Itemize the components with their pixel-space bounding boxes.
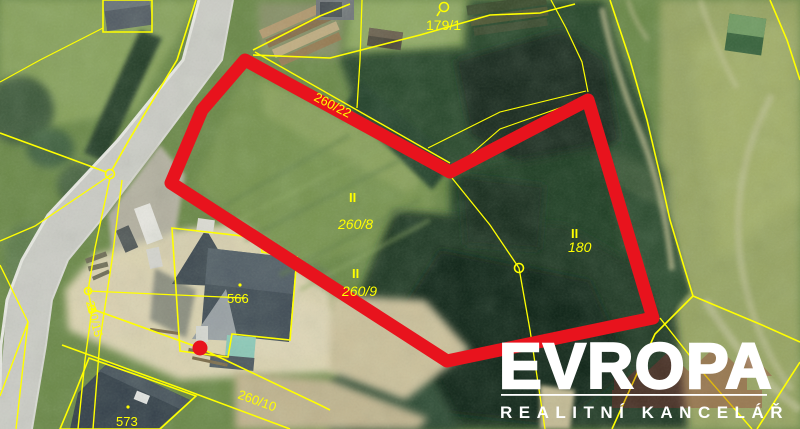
svg-text:260/9: 260/9: [341, 283, 377, 299]
svg-text:II: II: [349, 190, 356, 205]
svg-text:260/8: 260/8: [337, 216, 373, 232]
svg-text:REALITNÍ KANCELÁŘ: REALITNÍ KANCELÁŘ: [500, 403, 789, 422]
svg-text:179/1: 179/1: [426, 17, 461, 33]
svg-text:EVROPA: EVROPA: [499, 330, 773, 402]
svg-text:573: 573: [116, 414, 138, 429]
svg-text:180: 180: [568, 239, 592, 255]
svg-text:566: 566: [227, 291, 249, 306]
svg-text:II: II: [352, 266, 359, 281]
